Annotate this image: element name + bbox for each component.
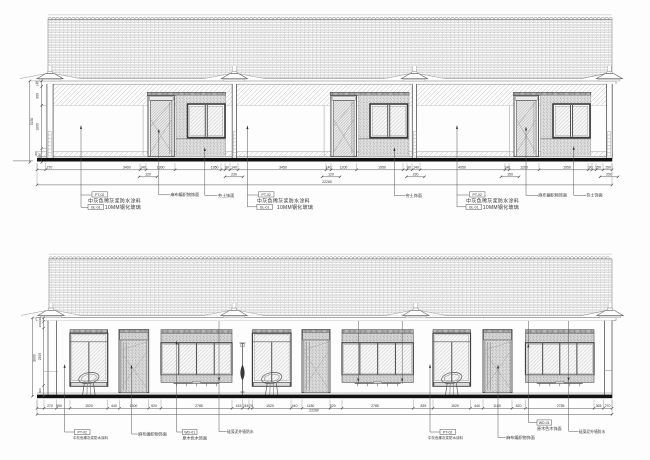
svg-text:WD-01: WD-01 [184,431,195,435]
svg-text:10MM钢化玻璃: 10MM钢化玻璃 [277,204,313,211]
svg-text:中灰色稀灰浆防水涂料: 中灰色稀灰浆防水涂料 [428,435,463,440]
svg-text:440: 440 [474,404,480,408]
svg-text:原木色木饰面: 原木色木饰面 [183,435,208,441]
svg-text:PT-02: PT-02 [473,193,482,197]
svg-text:140: 140 [140,165,146,169]
svg-text:950: 950 [56,404,62,408]
svg-text:硅藻泥外墙防水: 硅藻泥外墙防水 [579,429,606,434]
svg-text:PT-02: PT-02 [443,431,452,435]
svg-text:140: 140 [326,165,332,169]
svg-text:120: 120 [328,172,334,176]
svg-text:硅藻泥外墙防水: 硅藻泥外墙防水 [227,429,254,434]
svg-text:PT-02: PT-02 [78,431,87,435]
svg-text:520: 520 [151,404,157,408]
svg-text:GL-01: GL-01 [260,205,270,209]
svg-text:440: 440 [292,404,298,408]
svg-text:150: 150 [595,165,601,169]
svg-text:22260: 22260 [322,180,332,184]
svg-text:270: 270 [605,404,611,408]
svg-text:150: 150 [605,165,611,169]
svg-text:1200: 1200 [340,165,348,169]
svg-text:1180: 1180 [493,404,501,408]
svg-text:230: 230 [413,172,419,176]
svg-text:1180: 1180 [307,404,315,408]
svg-text:麻布编织物饰面: 麻布编织物饰面 [171,191,200,197]
svg-text:1300: 1300 [130,404,138,408]
svg-text:WD-01: WD-01 [539,421,550,425]
svg-text:520: 520 [516,404,522,408]
svg-text:250: 250 [606,172,612,176]
svg-text:1800: 1800 [35,123,39,131]
svg-text:麻布编织物饰面: 麻布编织物饰面 [538,192,567,198]
svg-text:1200: 1200 [520,165,528,169]
svg-text:120: 120 [145,172,151,176]
svg-text:2785: 2785 [557,404,565,408]
svg-text:1520: 1520 [451,404,459,408]
svg-text:麻布编织物饰面: 麻布编织物饰面 [138,430,167,436]
svg-text:835: 835 [420,404,426,408]
svg-text:245: 245 [243,404,249,408]
svg-text:3150: 3150 [30,118,34,126]
svg-text:3400: 3400 [123,165,131,169]
svg-text:800: 800 [35,93,39,99]
svg-text:270: 270 [46,165,52,169]
svg-text:140: 140 [413,165,419,169]
svg-text:原木色木饰面: 原木色木饰面 [537,425,562,431]
svg-text:夯土饰面: 夯土饰面 [406,192,422,198]
svg-text:70: 70 [249,404,253,408]
svg-text:365: 365 [596,404,602,408]
svg-text:22260: 22260 [309,409,319,413]
svg-text:2300: 2300 [38,353,42,361]
svg-text:3450: 3450 [279,165,287,169]
svg-text:中灰色稀灰浆防水涂料: 中灰色稀灰浆防水涂料 [466,198,519,205]
svg-text:300: 300 [38,388,42,393]
svg-text:1950: 1950 [563,165,571,169]
svg-text:90: 90 [225,165,229,169]
svg-text:PT-02: PT-02 [95,193,104,197]
svg-text:10MM钢化玻璃: 10MM钢化玻璃 [105,204,141,211]
svg-text:3000: 3000 [32,354,36,362]
svg-text:GL-01: GL-01 [91,205,101,209]
svg-text:90: 90 [407,165,411,169]
svg-text:麻布编织物饰面: 麻布编织物饰面 [506,434,535,440]
svg-text:夯土饰面: 夯土饰面 [218,192,234,198]
svg-text:150: 150 [507,172,513,176]
svg-text:1950: 1950 [378,165,386,169]
svg-text:230: 230 [231,172,237,176]
svg-text:2785: 2785 [195,404,203,408]
svg-text:中灰色稀灰浆防水涂料: 中灰色稀灰浆防水涂料 [257,198,310,205]
svg-text:中灰色稀灰浆防水涂料: 中灰色稀灰浆防水涂料 [73,435,108,440]
svg-text:1300: 1300 [157,165,165,169]
svg-text:中灰色稀灰浆防水涂料: 中灰色稀灰浆防水涂料 [88,198,141,205]
svg-text:440: 440 [111,404,117,408]
svg-text:415: 415 [236,404,242,408]
svg-text:140: 140 [504,165,510,169]
svg-text:150: 150 [38,153,42,158]
svg-text:140: 140 [231,165,237,169]
svg-text:140: 140 [38,317,42,322]
svg-text:GL-01: GL-01 [469,205,479,209]
svg-text:PT-02: PT-02 [262,193,271,197]
svg-text:4050: 4050 [458,165,466,169]
svg-text:1520: 1520 [85,404,93,408]
svg-text:2785: 2785 [371,404,379,408]
svg-text:10MM钢化玻璃: 10MM钢化玻璃 [483,204,519,211]
svg-text:140: 140 [35,81,39,86]
svg-text:520: 520 [330,404,336,408]
svg-text:90: 90 [589,165,593,169]
svg-text:270: 270 [47,404,53,408]
svg-text:1520: 1520 [266,404,274,408]
svg-text:260: 260 [38,322,42,327]
svg-text:夯土饰面: 夯土饰面 [586,192,602,198]
svg-text:1950: 1950 [211,165,219,169]
